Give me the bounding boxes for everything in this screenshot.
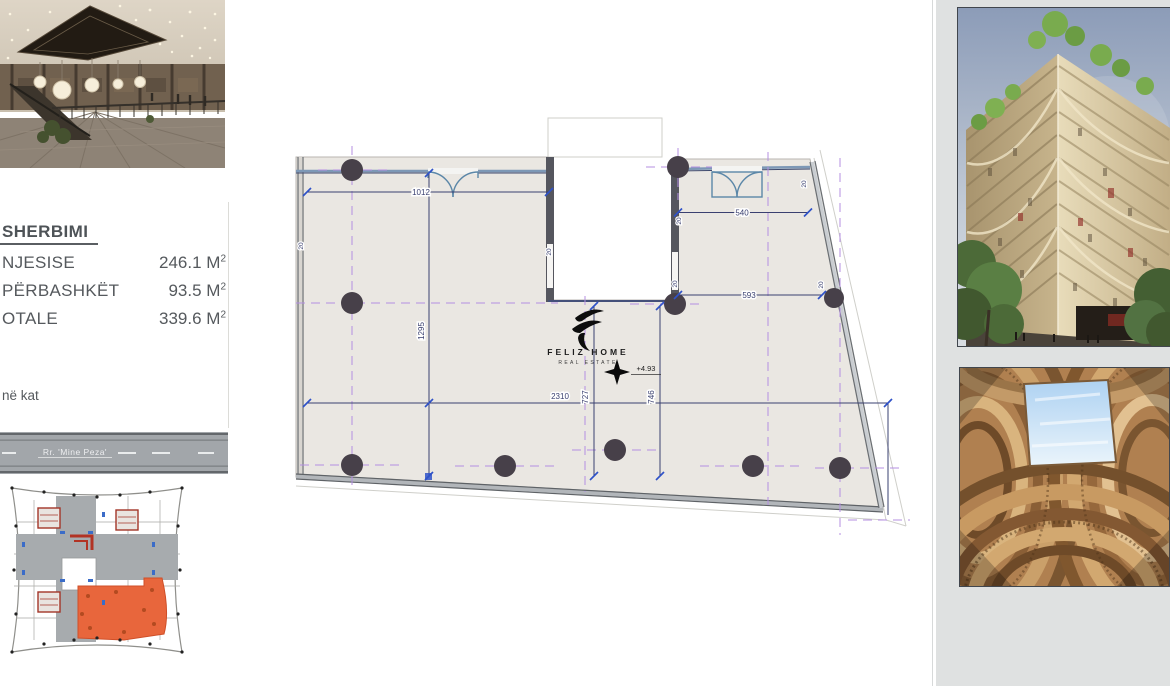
area-value: 93.5 M2 [168,281,226,301]
atrium-lookup-photo [959,367,1170,587]
photo-sidebar [936,0,1170,686]
area-summary: SHERBIMI NJESISE 246.1 M2 PËRBASHKËT 93.… [0,222,232,329]
summary-title: SHERBIMI [0,222,98,245]
area-label: PËRBASHKËT [2,281,168,301]
area-label: OTALE [2,309,159,329]
area-value: 339.6 M2 [159,309,226,329]
building-exterior-photo [957,7,1170,347]
area-value: 246.1 M2 [159,253,226,273]
wall-marker [425,473,432,480]
svg-text:20: 20 [546,248,553,256]
floor-note: në kat [2,388,39,403]
svg-text:20: 20 [298,242,305,250]
dim-label: 2310 [551,392,569,401]
listing-page: SHERBIMI NJESISE 246.1 M2 PËRBASHKËT 93.… [0,0,1170,686]
area-row-totale: OTALE 339.6 M2 [0,309,232,329]
main-floor-plan: 1012 540 593 2310 1295 727 746 20 20 20 … [280,100,920,540]
dim-label: 593 [742,291,756,300]
elevation-label: +4.93 [637,364,656,373]
unit-area [296,157,883,510]
panel-divider-line [228,202,229,428]
road-surface [0,432,228,474]
logo-text-line2: REAL ESTATE [558,360,617,366]
core-void [62,558,96,590]
street-name-label: Rr. 'Mine Peza' [43,447,107,457]
area-row-njesise: NJESISE 246.1 M2 [0,253,232,273]
area-row-perbashket: PËRBASHKËT 93.5 M2 [0,281,232,301]
street-band: Rr. 'Mine Peza' [0,427,228,479]
logo-text-line1: FELIZ HOME [547,347,628,357]
dim-label: 746 [647,390,656,404]
interior-render-photo [0,0,225,168]
key-plan [4,482,190,658]
dim-label: 540 [735,209,749,218]
svg-text:20: 20 [818,281,825,289]
area-label: NJESISE [2,253,159,273]
dim-label: 1012 [412,188,430,197]
dim-label: 727 [581,390,590,404]
svg-text:20: 20 [801,180,808,188]
highlighted-unit [78,578,167,640]
svg-text:20: 20 [676,217,683,225]
dim-label: 1295 [417,322,426,340]
page-edge-line [932,0,933,686]
svg-text:20: 20 [672,280,679,288]
